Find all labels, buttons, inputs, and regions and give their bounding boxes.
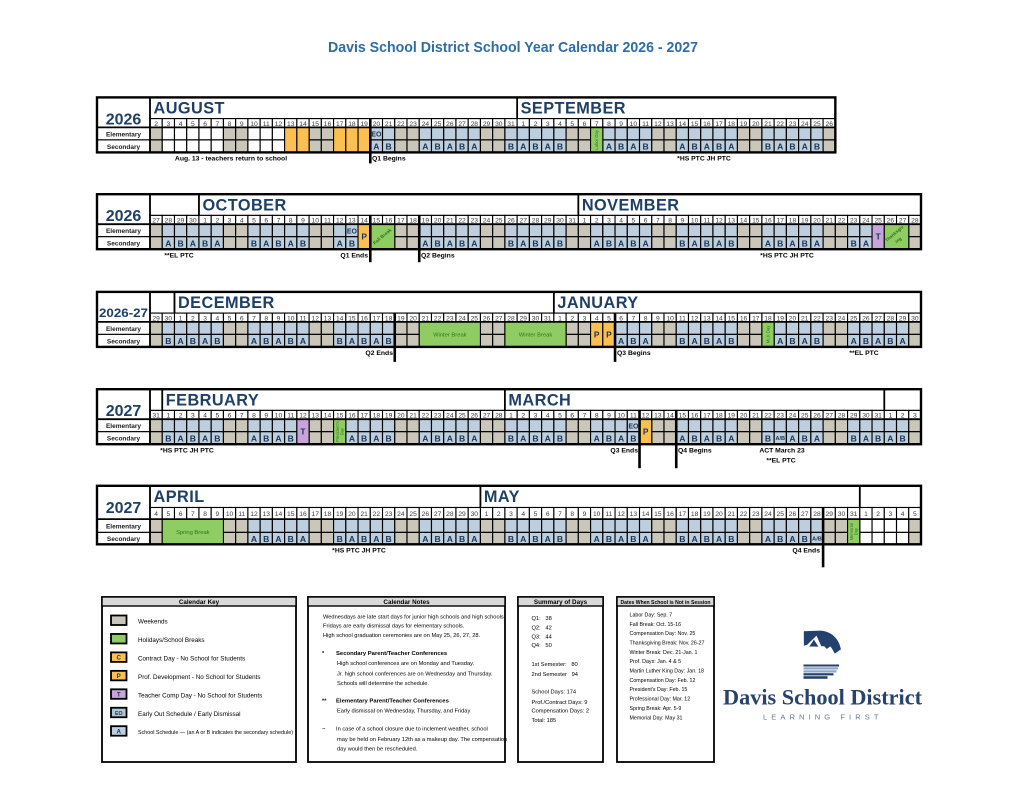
svg-text:A: A: [765, 534, 771, 544]
svg-text:B: B: [691, 433, 697, 443]
svg-text:B: B: [716, 142, 722, 152]
svg-text:Professional Day: Mar. 12: Professional Day: Mar. 12: [630, 697, 691, 703]
svg-text:B: B: [337, 534, 343, 544]
svg-text:A: A: [802, 142, 808, 152]
svg-text:B: B: [300, 238, 306, 248]
svg-text:A: A: [716, 238, 722, 248]
svg-text:7: 7: [558, 511, 562, 518]
svg-text:Q3: 44: Q3: 44: [532, 635, 552, 641]
svg-text:Elementary: Elementary: [106, 228, 141, 235]
svg-text:23: 23: [385, 511, 393, 518]
svg-text:A: A: [251, 336, 257, 346]
svg-text:JANUARY: JANUARY: [557, 294, 638, 312]
svg-text:P: P: [117, 673, 121, 680]
svg-text:13: 13: [630, 511, 638, 518]
svg-text:B: B: [789, 142, 795, 152]
svg-text:MARCH: MARCH: [508, 392, 571, 410]
svg-text:B: B: [606, 433, 612, 443]
svg-text:A: A: [594, 433, 600, 443]
svg-text:A: A: [202, 336, 208, 346]
svg-text:B: B: [900, 433, 906, 443]
svg-text:P: P: [594, 329, 600, 339]
svg-text:12: 12: [617, 511, 625, 518]
svg-text:B: B: [643, 142, 649, 152]
svg-text:NOVEMBER: NOVEMBER: [582, 197, 680, 215]
svg-text:A: A: [373, 142, 379, 152]
svg-text:B: B: [251, 238, 257, 248]
svg-text:A: A: [704, 433, 710, 443]
svg-text:A: A: [900, 336, 906, 346]
svg-text:Secondary: Secondary: [107, 144, 141, 151]
svg-text:Secondary: Secondary: [107, 338, 141, 345]
svg-text:A: A: [275, 336, 281, 346]
svg-text:1: 1: [864, 511, 868, 518]
svg-text:B: B: [263, 534, 269, 544]
svg-text:B: B: [777, 534, 783, 544]
svg-text:P: P: [361, 232, 367, 242]
svg-text:Labor Day: Sep. 7: Labor Day: Sep. 7: [630, 612, 673, 618]
svg-text:Schools will determine the sch: Schools will determine the schedule.: [337, 681, 429, 687]
svg-text:EO: EO: [347, 228, 358, 235]
svg-text:B: B: [165, 336, 171, 346]
svg-text:Martin Luther King Day: Jan. 1: Martin Luther King Day: Jan. 18: [630, 669, 705, 675]
svg-text:B: B: [728, 534, 734, 544]
svg-text:A: A: [691, 238, 697, 248]
svg-text:A: A: [679, 433, 685, 443]
svg-text:3: 3: [509, 511, 513, 518]
svg-text:B: B: [728, 336, 734, 346]
svg-text:A: A: [520, 534, 526, 544]
svg-text:DECEMBER: DECEMBER: [178, 294, 275, 312]
svg-text:B: B: [630, 534, 636, 544]
svg-text:22: 22: [373, 511, 381, 518]
svg-text:A: A: [643, 336, 649, 346]
svg-text:2026: 2026: [106, 208, 142, 225]
svg-text:B: B: [814, 336, 820, 346]
svg-text:**: **: [322, 699, 327, 705]
svg-text:Fall Break: Oct. 15-16: Fall Break: Oct. 15-16: [630, 622, 682, 628]
svg-text:Q2 Begins: Q2 Begins: [421, 253, 455, 260]
svg-text:A: A: [520, 142, 526, 152]
svg-text:A: A: [275, 534, 281, 544]
svg-text:A: A: [691, 534, 697, 544]
svg-text:Day: Day: [340, 427, 345, 435]
svg-text:Q1: 38: Q1: 38: [532, 616, 552, 622]
svg-text:A: A: [875, 336, 881, 346]
svg-text:9: 9: [215, 511, 219, 518]
svg-text:B: B: [214, 336, 220, 346]
svg-text:B: B: [165, 433, 171, 443]
svg-text:4: 4: [154, 511, 158, 518]
svg-text:A: A: [716, 336, 722, 346]
svg-text:Day: Day: [854, 527, 859, 535]
svg-text:B: B: [887, 336, 893, 346]
svg-text:A: A: [202, 433, 208, 443]
svg-text:Dates When School is Not in Se: Dates When School is Not in Session: [621, 600, 711, 606]
svg-text:A: A: [373, 336, 379, 346]
svg-text:9: 9: [583, 511, 587, 518]
svg-text:A: A: [300, 336, 306, 346]
svg-text:B: B: [361, 433, 367, 443]
svg-text:B: B: [190, 336, 196, 346]
svg-text:School Schedule — (an A or B i: School Schedule — (an A or B indicates t…: [138, 730, 293, 736]
svg-text:OCTOBER: OCTOBER: [202, 197, 286, 215]
svg-text:B: B: [704, 238, 710, 248]
svg-text:24: 24: [397, 511, 405, 518]
svg-text:A: A: [765, 238, 771, 248]
svg-text:Q4 Ends: Q4 Ends: [792, 548, 820, 555]
svg-text:Secondary: Secondary: [107, 536, 141, 543]
svg-text:30: 30: [471, 511, 479, 518]
svg-text:Secondary Parent/Teacher Confe: Secondary Parent/Teacher Conferences: [336, 651, 448, 657]
svg-text:Q3 Begins: Q3 Begins: [617, 350, 651, 357]
svg-text:A: A: [447, 142, 453, 152]
svg-text:B: B: [618, 142, 624, 152]
svg-text:A: A: [190, 238, 196, 248]
svg-text:A: A: [594, 238, 600, 248]
svg-text:2026: 2026: [106, 111, 142, 128]
svg-text:16: 16: [299, 511, 307, 518]
svg-text:A: A: [728, 142, 734, 152]
svg-text:A: A: [618, 336, 624, 346]
svg-text:P: P: [643, 427, 649, 437]
svg-text:*HS PTC JH PTC: *HS PTC JH PTC: [160, 448, 214, 455]
svg-text:Summary of Days: Summary of Days: [534, 599, 588, 606]
svg-text:A: A: [373, 433, 379, 443]
svg-text:Prof. Development - No School: Prof. Development - No School for Studen…: [138, 674, 261, 681]
svg-text:B: B: [691, 142, 697, 152]
svg-text:B: B: [275, 238, 281, 248]
svg-text:B: B: [361, 534, 367, 544]
svg-text:T: T: [300, 427, 306, 437]
svg-text:B: B: [386, 336, 392, 346]
svg-text:A: A: [471, 534, 477, 544]
svg-text:B: B: [386, 534, 392, 544]
svg-text:Elementary: Elementary: [106, 423, 141, 430]
svg-text:A: A: [728, 433, 734, 443]
svg-text:High school graduation ceremon: High school graduation ceremonies are on…: [323, 633, 481, 639]
svg-text:B: B: [557, 238, 563, 248]
svg-text:B: B: [386, 433, 392, 443]
svg-text:A: A: [337, 238, 343, 248]
svg-text:18: 18: [324, 511, 332, 518]
svg-text:Teacher Comp Day - No School f: Teacher Comp Day - No School for Student…: [138, 692, 262, 699]
svg-text:C: C: [117, 655, 122, 662]
svg-text:29: 29: [458, 511, 466, 518]
svg-text:Q4: 50: Q4: 50: [532, 643, 552, 649]
svg-text:A: A: [863, 238, 869, 248]
svg-text:B: B: [508, 238, 514, 248]
svg-text:A: A: [606, 142, 612, 152]
svg-text:A: A: [251, 433, 257, 443]
svg-text:A: A: [802, 336, 808, 346]
svg-text:14: 14: [275, 511, 283, 518]
svg-text:2: 2: [876, 511, 880, 518]
svg-text:In case of a school closure du: In case of a school closure due to incle…: [336, 726, 488, 732]
svg-text:A/B: A/B: [775, 436, 785, 442]
svg-text:14: 14: [642, 511, 650, 518]
svg-text:B: B: [679, 336, 685, 346]
svg-text:A: A: [545, 238, 551, 248]
svg-text:B: B: [532, 142, 538, 152]
svg-text:B: B: [202, 238, 208, 248]
svg-text:Prof. Days: Jan. 4 & 5: Prof. Days: Jan. 4 & 5: [630, 659, 682, 665]
svg-text:4: 4: [521, 511, 525, 518]
svg-text:20: 20: [715, 511, 723, 518]
svg-text:Early Out Schedule / Early Dis: Early Out Schedule / Early Dismissal: [138, 711, 241, 718]
svg-text:Q2 Ends: Q2 Ends: [365, 350, 393, 357]
svg-text:A: A: [214, 238, 220, 248]
svg-text:A: A: [789, 238, 795, 248]
svg-text:B: B: [802, 534, 808, 544]
svg-text:B: B: [459, 534, 465, 544]
svg-text:26: 26: [422, 511, 430, 518]
svg-text:8: 8: [203, 511, 207, 518]
svg-text:B: B: [765, 433, 771, 443]
svg-text:A: A: [447, 433, 453, 443]
svg-text:21: 21: [360, 511, 368, 518]
svg-text:B: B: [630, 433, 636, 443]
svg-text:B: B: [288, 534, 294, 544]
svg-text:13: 13: [263, 511, 271, 518]
svg-text:Elementary: Elementary: [106, 131, 141, 138]
svg-text:B: B: [802, 238, 808, 248]
svg-text:Total: 185: Total: 185: [532, 718, 557, 724]
svg-text:6: 6: [179, 511, 183, 518]
svg-text:Jr. high school conferences ar: Jr. high school conferences are on Wedne…: [337, 671, 493, 677]
svg-text:A: A: [349, 534, 355, 544]
svg-text:Wednesdays are late start days: Wednesdays are late start days for junio…: [323, 614, 506, 620]
svg-text:B: B: [679, 534, 685, 544]
svg-text:5: 5: [534, 511, 538, 518]
svg-text:B: B: [361, 336, 367, 346]
svg-text:B: B: [263, 433, 269, 443]
svg-text:15: 15: [287, 511, 295, 518]
svg-text:A: A: [691, 336, 697, 346]
svg-text:A: A: [251, 534, 257, 544]
svg-text:1: 1: [485, 511, 489, 518]
svg-text:B: B: [606, 238, 612, 248]
svg-text:1st Semester: 80: 1st Semester: 80: [532, 662, 578, 668]
svg-text:10: 10: [593, 511, 601, 518]
svg-text:MLK Day: MLK Day: [766, 325, 771, 344]
svg-text:22: 22: [740, 511, 748, 518]
svg-text:B: B: [802, 433, 808, 443]
svg-text:Elementary: Elementary: [106, 523, 141, 530]
svg-text:A: A: [349, 336, 355, 346]
svg-text:A: A: [471, 238, 477, 248]
svg-text:26: 26: [789, 511, 797, 518]
svg-text:A: A: [887, 433, 893, 443]
svg-text:21: 21: [728, 511, 736, 518]
svg-text:A: A: [520, 433, 526, 443]
svg-text:Winter Break: Winter Break: [519, 333, 553, 339]
svg-text:Aug. 13 - teachers return to s: Aug. 13 - teachers return to school: [175, 156, 287, 163]
svg-text:B: B: [434, 433, 440, 443]
svg-text:B: B: [508, 142, 514, 152]
svg-text:Holidays/School Breaks: Holidays/School Breaks: [138, 637, 205, 644]
svg-text:B: B: [263, 336, 269, 346]
svg-text:B: B: [875, 433, 881, 443]
svg-text:A: A: [471, 433, 477, 443]
svg-text:B: B: [288, 433, 294, 443]
svg-text:**EL PTC: **EL PTC: [164, 253, 193, 260]
svg-text:A: A: [545, 433, 551, 443]
svg-text:15: 15: [654, 511, 662, 518]
svg-text:A: A: [814, 433, 820, 443]
svg-text:**EL PTC: **EL PTC: [849, 350, 878, 357]
svg-text:25: 25: [409, 511, 417, 518]
svg-text:B: B: [557, 534, 563, 544]
svg-text:B: B: [459, 238, 465, 248]
svg-text:A: A: [447, 534, 453, 544]
svg-text:Compensation Days: 2: Compensation Days: 2: [532, 708, 590, 714]
svg-text:Memorial Day: May 31: Memorial Day: May 31: [630, 715, 683, 721]
svg-text:Calendar Key: Calendar Key: [179, 599, 220, 606]
svg-text:B: B: [728, 238, 734, 248]
svg-text:President's Day: Feb. 15: President's Day: Feb. 15: [630, 687, 688, 693]
svg-text:3: 3: [889, 511, 893, 518]
svg-text:Thanksgiving Break: Nov. 26-27: Thanksgiving Break: Nov. 26-27: [630, 640, 705, 646]
svg-text:MAY: MAY: [484, 488, 520, 506]
svg-text:LEARNING FIRST: LEARNING FIRST: [763, 713, 882, 722]
svg-text:12: 12: [250, 511, 258, 518]
svg-text:APRIL: APRIL: [154, 488, 205, 506]
svg-text:19: 19: [703, 511, 711, 518]
svg-text:2nd Semester 94: 2nd Semester 94: [532, 672, 578, 678]
svg-text:A: A: [422, 142, 428, 152]
svg-text:B: B: [789, 336, 795, 346]
svg-text:29: 29: [825, 511, 833, 518]
svg-text:Spring Break: Apr. 5-9: Spring Break: Apr. 5-9: [630, 706, 682, 712]
svg-text:B: B: [214, 433, 220, 443]
svg-text:A: A: [373, 534, 379, 544]
svg-text:B: B: [630, 238, 636, 248]
svg-text:day would then be rescheduled.: day would then be rescheduled.: [337, 746, 418, 752]
svg-text:A: A: [422, 238, 428, 248]
svg-text:Compensation Day: Nov. 25: Compensation Day: Nov. 25: [630, 631, 696, 637]
svg-text:A: A: [618, 238, 624, 248]
svg-text:B: B: [508, 433, 514, 443]
svg-text:Compensation Day: Feb. 12: Compensation Day: Feb. 12: [630, 678, 696, 684]
svg-text:B: B: [777, 238, 783, 248]
svg-text:A: A: [716, 534, 722, 544]
svg-text:Q4 Begins: Q4 Begins: [678, 448, 712, 455]
svg-text:A: A: [275, 433, 281, 443]
svg-text:A: A: [643, 534, 649, 544]
svg-text:A: A: [777, 336, 783, 346]
svg-text:A: A: [643, 238, 649, 248]
svg-text:A: A: [630, 142, 636, 152]
svg-text:P: P: [606, 329, 612, 339]
svg-text:B: B: [434, 534, 440, 544]
svg-text:11: 11: [605, 511, 612, 518]
svg-text:27: 27: [801, 511, 809, 518]
svg-text:B: B: [532, 238, 538, 248]
svg-text:A: A: [447, 238, 453, 248]
svg-text:Winter Break: Dec. 21-Jan. 1: Winter Break: Dec. 21-Jan. 1: [630, 650, 698, 656]
svg-text:A: A: [471, 142, 477, 152]
svg-text:B: B: [716, 433, 722, 443]
svg-text:Secondary: Secondary: [107, 241, 141, 248]
svg-text:A: A: [679, 142, 685, 152]
svg-text:B: B: [851, 238, 857, 248]
svg-text:B: B: [386, 142, 392, 152]
svg-text:B: B: [630, 336, 636, 346]
svg-text:Early dismissal on Wednesday,: Early dismissal on Wednesday, Thursday, …: [337, 708, 470, 714]
svg-text:Secondary: Secondary: [107, 436, 141, 443]
svg-text:B: B: [863, 336, 869, 346]
svg-text:A: A: [177, 433, 183, 443]
svg-text:B: B: [508, 534, 514, 544]
svg-text:ACT March 23: ACT March 23: [759, 448, 805, 455]
svg-text:A: A: [520, 238, 526, 248]
svg-text:A/B: A/B: [812, 537, 822, 543]
svg-text:A: A: [594, 534, 600, 544]
svg-text:10: 10: [226, 511, 234, 518]
svg-text:11: 11: [238, 511, 245, 518]
svg-text:A: A: [704, 142, 710, 152]
svg-text:EO: EO: [371, 132, 382, 139]
svg-text:B: B: [459, 142, 465, 152]
svg-text:B: B: [679, 238, 685, 248]
svg-text:A: A: [422, 534, 428, 544]
svg-text:24: 24: [764, 511, 772, 518]
svg-text:17: 17: [679, 511, 687, 518]
svg-text:6: 6: [546, 511, 550, 518]
svg-text:2: 2: [497, 511, 501, 518]
svg-text:School Days: 174: School Days: 174: [532, 690, 577, 696]
svg-text:17: 17: [311, 511, 319, 518]
svg-text:AUGUST: AUGUST: [154, 100, 225, 118]
svg-text:31: 31: [850, 511, 858, 518]
svg-text:B: B: [704, 534, 710, 544]
svg-text:B: B: [177, 238, 183, 248]
svg-text:23: 23: [752, 511, 760, 518]
svg-text:Q1 Begins: Q1 Begins: [372, 156, 406, 163]
svg-text:A: A: [863, 433, 869, 443]
svg-text:B: B: [814, 142, 820, 152]
svg-text:2026-27: 2026-27: [99, 308, 148, 320]
svg-text:B: B: [557, 142, 563, 152]
svg-text:Weekends: Weekends: [138, 619, 168, 626]
svg-text:19: 19: [336, 511, 344, 518]
svg-text:7: 7: [191, 511, 195, 518]
svg-text:4: 4: [901, 511, 905, 518]
svg-text:EO: EO: [628, 423, 639, 430]
svg-text:A: A: [851, 336, 857, 346]
svg-text:B: B: [532, 534, 538, 544]
svg-text:Labor Day: Labor Day: [594, 129, 599, 150]
svg-text:Davis School District School Y: Davis School District School Year Calend…: [328, 40, 698, 56]
svg-text:B: B: [532, 433, 538, 443]
svg-text:5: 5: [913, 511, 917, 518]
svg-text:Calendar Notes: Calendar Notes: [383, 599, 430, 606]
svg-text:EO: EO: [115, 711, 123, 717]
svg-text:A: A: [618, 534, 624, 544]
svg-text:A: A: [789, 534, 795, 544]
svg-text:B: B: [606, 534, 612, 544]
svg-text:may be held on February 12th a: may be held on February 12th as a makeup…: [337, 737, 507, 743]
svg-text:5: 5: [166, 511, 170, 518]
svg-text:A: A: [814, 238, 820, 248]
svg-text:B: B: [190, 433, 196, 443]
svg-text:28: 28: [813, 511, 821, 518]
svg-text:8: 8: [570, 511, 574, 518]
svg-text:B: B: [459, 433, 465, 443]
svg-text:18: 18: [691, 511, 699, 518]
svg-text:A: A: [789, 433, 795, 443]
